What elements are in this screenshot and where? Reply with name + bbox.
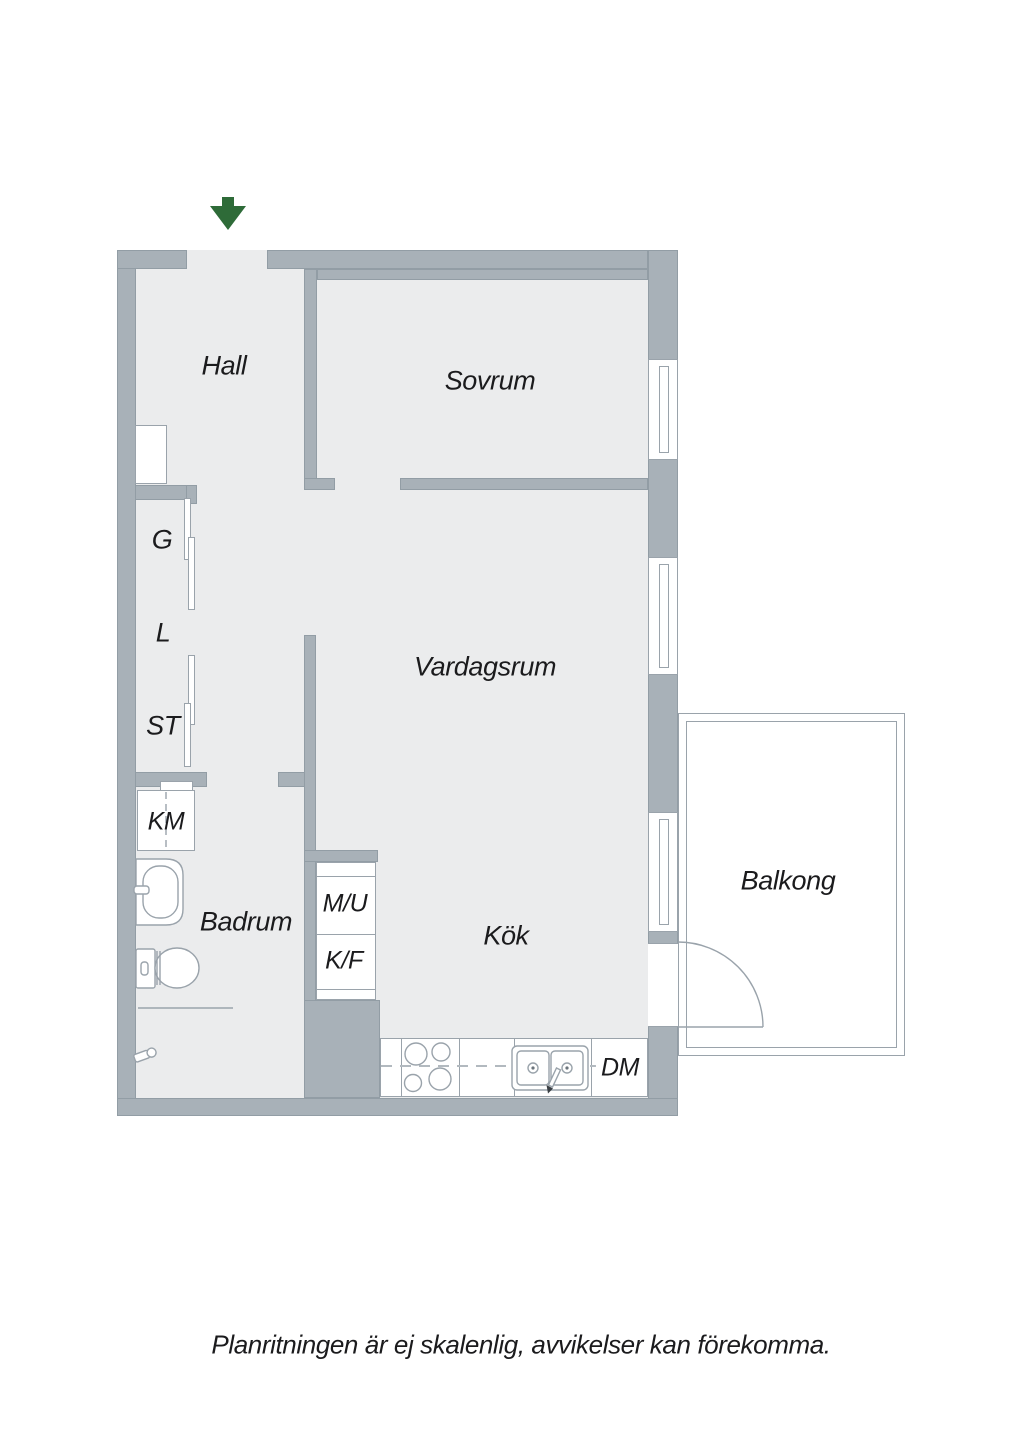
closet-label-linneskap: L	[156, 618, 171, 649]
toilet-icon	[136, 948, 199, 988]
floor-plan: Hall Sovrum Vardagsrum Kök Badrum Balkon…	[0, 0, 1024, 1448]
room-label-vardagsrum: Vardagsrum	[414, 652, 556, 683]
room-label-balkong: Balkong	[741, 866, 836, 897]
closet-label-garderob: G	[152, 525, 173, 556]
room-label-badrum: Badrum	[200, 907, 292, 938]
entrance-arrow-icon	[205, 193, 255, 238]
disclaimer-text: Planritningen är ej skalenlig, avvikelse…	[211, 1330, 830, 1361]
appliance-label-tvattmaskin: KM	[148, 808, 185, 837]
room-label-hall: Hall	[202, 351, 247, 382]
room-label-sovrum: Sovrum	[445, 366, 536, 397]
stove-icon	[405, 1043, 452, 1092]
kitchen-sink-icon	[512, 1046, 588, 1094]
appliance-label-diskmaskin: DM	[596, 1054, 644, 1083]
appliance-label-micro-ugn: M/U	[323, 890, 368, 919]
shower-drain-icon	[133, 1047, 157, 1063]
washbasin-icon	[134, 859, 183, 925]
room-label-kok: Kök	[483, 921, 528, 952]
appliance-label-kyl-frys: K/F	[325, 947, 363, 976]
balcony-door-swing-icon	[678, 942, 763, 1027]
closet-label-stadskap: ST	[146, 711, 180, 742]
